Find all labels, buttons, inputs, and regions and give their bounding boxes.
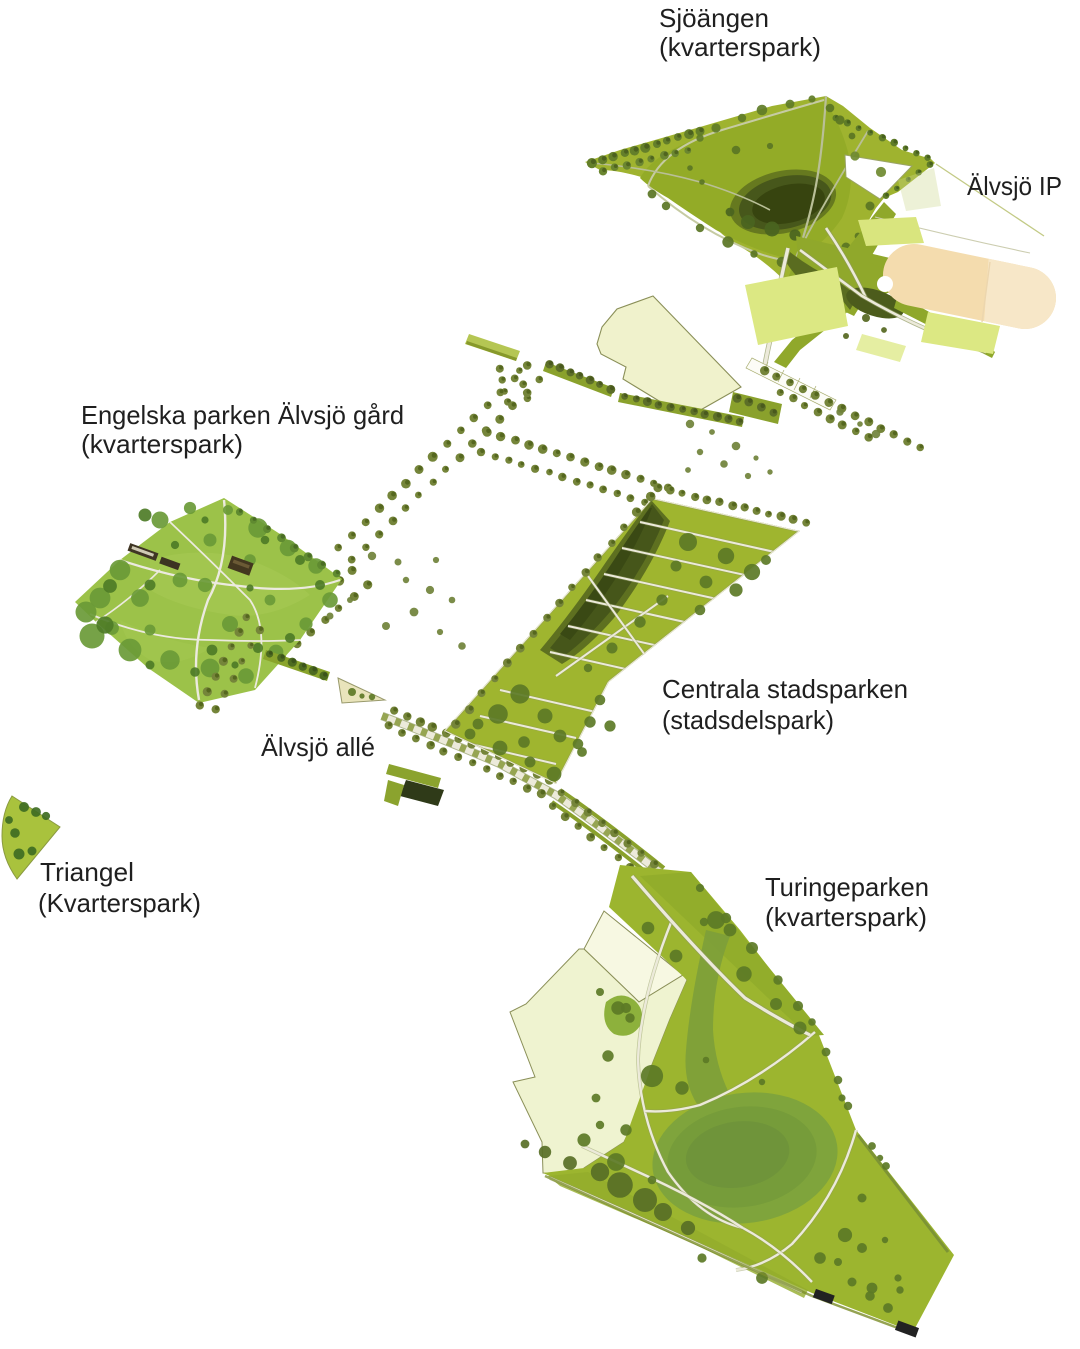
svg-text:(kvarterspark): (kvarterspark): [659, 32, 821, 62]
svg-text:Älvsjö IP: Älvsjö IP: [967, 171, 1062, 201]
svg-text:Turingeparken: Turingeparken: [765, 872, 929, 902]
svg-text:(stadsdelspark): (stadsdelspark): [662, 705, 834, 735]
svg-text:(kvarterspark): (kvarterspark): [765, 902, 927, 932]
svg-text:Centrala stadsparken: Centrala stadsparken: [662, 674, 908, 704]
svg-text:(Kvarterspark): (Kvarterspark): [38, 888, 201, 918]
svg-text:(kvarterspark): (kvarterspark): [81, 429, 243, 459]
svg-text:Sjöängen: Sjöängen: [659, 3, 769, 33]
svg-text:Triangel: Triangel: [40, 857, 134, 887]
svg-text:Engelska parken Älvsjö gård: Engelska parken Älvsjö gård: [81, 400, 404, 430]
svg-text:Älvsjö allé: Älvsjö allé: [261, 732, 375, 762]
